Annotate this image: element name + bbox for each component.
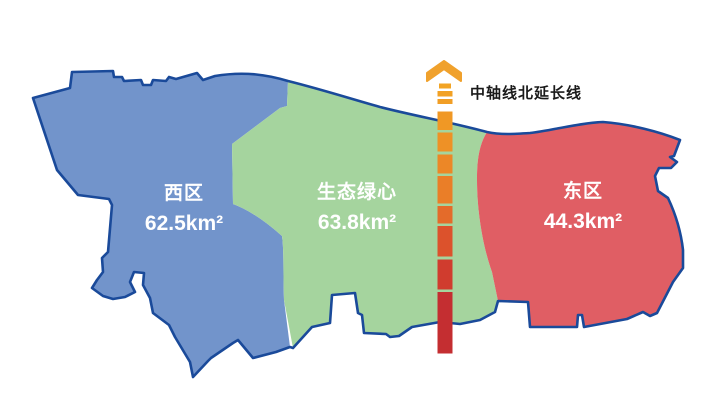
map-canvas: 西区 62.5km² 生态绿心 63.8km² 东区 44.3km² 中轴线北延… — [0, 0, 718, 407]
region-east-shape — [477, 122, 683, 327]
region-west-shape — [33, 71, 290, 377]
axis-arrow-icon — [427, 61, 461, 81]
axis-line-label: 中轴线北延长线 — [470, 82, 582, 103]
districts-map-svg — [0, 0, 718, 407]
